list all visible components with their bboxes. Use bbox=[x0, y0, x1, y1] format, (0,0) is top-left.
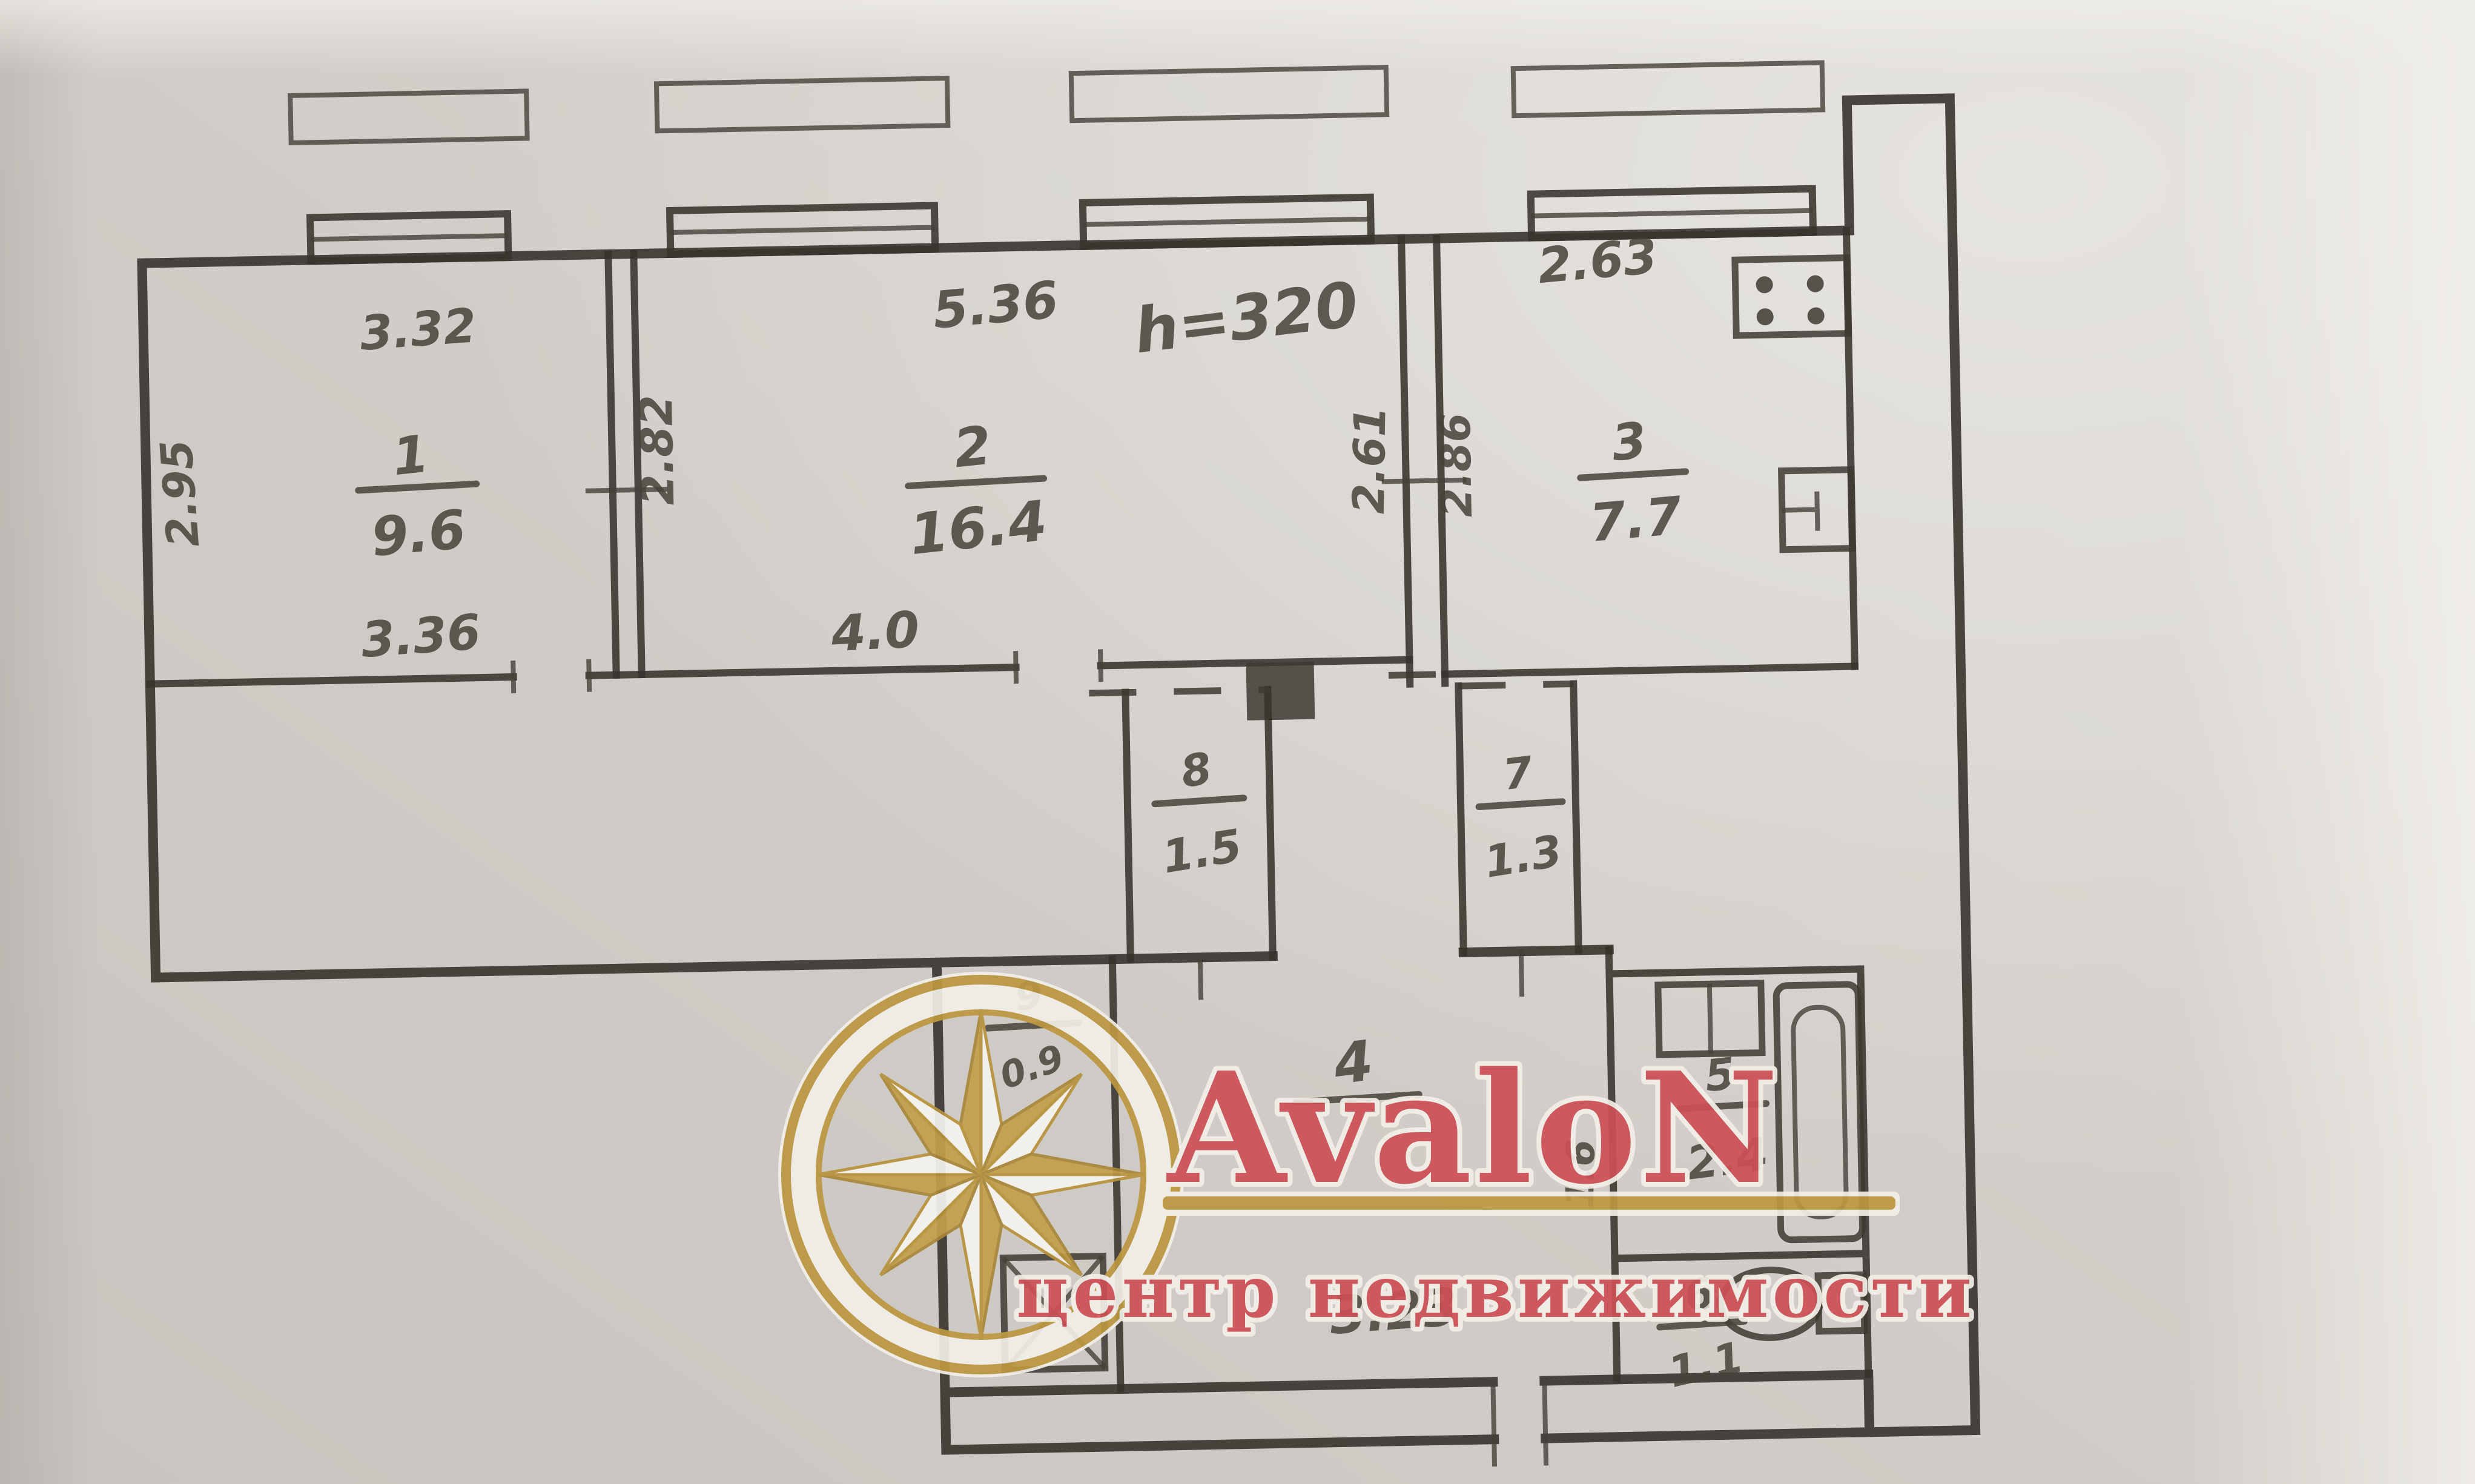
room3-area: 7.7 bbox=[1587, 486, 1685, 554]
room7-fraction-line bbox=[1479, 802, 1562, 807]
room3-fraction-line bbox=[1581, 472, 1686, 478]
room1-number: 1 bbox=[390, 424, 432, 487]
dim-room2-left: 2.82 bbox=[630, 394, 684, 506]
kitchen-door-opening bbox=[1389, 674, 1445, 676]
room8-number: 8 bbox=[1177, 742, 1215, 797]
dim-tick bbox=[1200, 957, 1201, 1000]
corridor-top-wall bbox=[150, 660, 1410, 684]
ceiling-height-note: h=320 bbox=[1131, 268, 1363, 368]
room8-area: 1.5 bbox=[1158, 820, 1245, 884]
room7-number: 7 bbox=[1500, 747, 1536, 800]
dim-room1-left: 2.95 bbox=[151, 438, 209, 549]
window-ledge-icon bbox=[656, 78, 948, 131]
dim-room2-top: 5.36 bbox=[930, 270, 1060, 340]
dim-room3-top: 2.63 bbox=[1536, 228, 1660, 294]
dim-room2-bottom: 4.0 bbox=[829, 601, 920, 664]
wardrobe-dashed-front-icon bbox=[1089, 690, 1267, 693]
room2-number: 2 bbox=[951, 414, 994, 480]
wall-pier bbox=[1246, 662, 1315, 721]
room2-fraction-line bbox=[908, 478, 1044, 486]
closet7-walls bbox=[1458, 684, 1578, 952]
dim-room1-bottom: 3.36 bbox=[359, 604, 483, 668]
room1-fraction-line bbox=[359, 484, 477, 490]
room6-area: 1.1 bbox=[1664, 1332, 1748, 1397]
dim-room3-left: 2.86 bbox=[1430, 412, 1482, 518]
floor-plan-scan: 3.32 1 9.6 3.36 2.95 5.36 h=320 2 16.4 2… bbox=[0, 0, 2475, 1484]
entrance-door-jambs bbox=[1493, 1381, 1546, 1467]
brand-tagline: центр недвижимости bbox=[1016, 1250, 1975, 1334]
dim-room1-top: 3.32 bbox=[358, 298, 478, 361]
window-ledge-icon bbox=[1071, 67, 1387, 120]
kitchen-bottom-wall bbox=[1445, 667, 1855, 674]
floor-plan-drawing: 3.32 1 9.6 3.36 2.95 5.36 h=320 2 16.4 2… bbox=[0, 0, 2475, 1484]
room8-fraction-line bbox=[1155, 798, 1244, 804]
dim-tick bbox=[1521, 951, 1522, 997]
brand-name: AvaloN bbox=[1166, 1039, 1781, 1218]
closet8-walls bbox=[1125, 690, 1272, 958]
window-ledge-icon bbox=[1513, 62, 1823, 116]
dim-room2-right: 2.61 bbox=[1343, 406, 1396, 515]
room3-number: 3 bbox=[1609, 412, 1650, 473]
wardrobe-dashed-front-icon bbox=[1458, 684, 1573, 686]
room7-area: 1.3 bbox=[1481, 825, 1565, 888]
stove-icon bbox=[1735, 258, 1848, 336]
room2-area: 16.4 bbox=[907, 489, 1050, 568]
kitchen-sink-icon bbox=[1782, 470, 1852, 550]
window-ledge-icon bbox=[290, 91, 527, 142]
room1-area: 9.6 bbox=[369, 498, 468, 568]
